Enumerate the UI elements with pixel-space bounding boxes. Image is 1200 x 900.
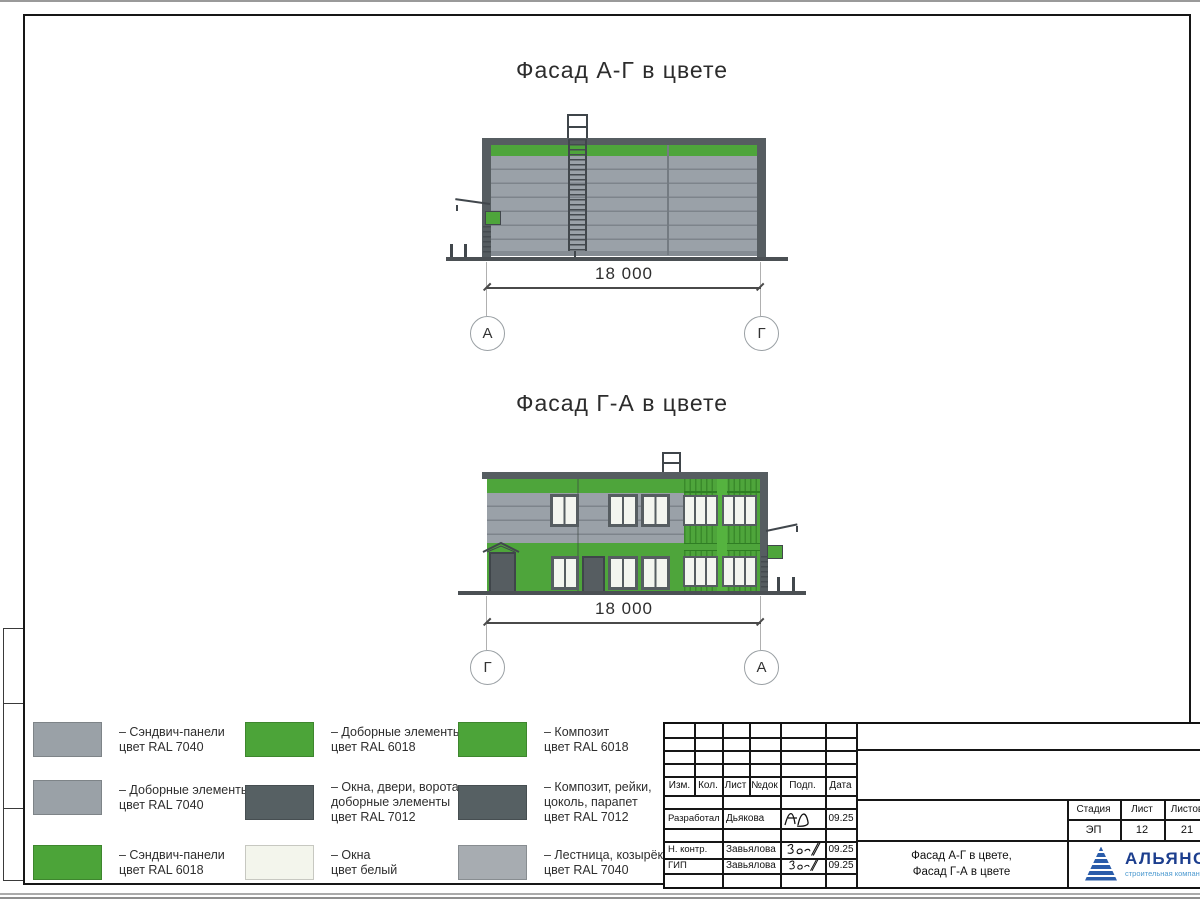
signature-icon <box>781 841 824 858</box>
rev-col-header: №док <box>749 776 780 795</box>
page-top-edge <box>0 0 1200 2</box>
bollard <box>450 244 453 258</box>
legend-item: – Композит, рейки,цоколь, парапетцвет RA… <box>458 780 652 825</box>
bollard <box>792 577 795 591</box>
sheet-name-line: Фасад А-Г в цвете, <box>911 848 1012 864</box>
frame-left <box>23 14 25 885</box>
axis-marker: Г <box>470 650 505 685</box>
parapet <box>482 138 766 145</box>
door <box>582 556 605 595</box>
legend-item: – Доборные элементыцвет RAL 7040 <box>33 780 250 815</box>
window <box>641 494 670 527</box>
page-bottom-edge <box>0 893 1200 895</box>
wall-ladder <box>568 139 587 251</box>
signature-name: Завьялова <box>723 858 782 873</box>
legend-item: – Лестница, козырёкцвет RAL 7040 <box>458 845 663 880</box>
legend-label: – Окнацвет белый <box>331 848 397 878</box>
signature-date: 09.25 <box>826 858 856 873</box>
color-swatch <box>33 845 102 880</box>
dimension-line <box>487 287 761 289</box>
rev-col-header: Кол. <box>694 776 722 795</box>
window-triple <box>722 495 757 526</box>
rev-col-header: Дата <box>825 776 856 795</box>
color-swatch <box>458 722 527 757</box>
window-triple <box>683 556 718 587</box>
sheet-header: Лист <box>1120 799 1164 819</box>
green-box <box>767 545 783 559</box>
window <box>550 494 579 527</box>
stage-header: Стадия <box>1067 799 1120 819</box>
frame-left-column-divider <box>3 703 23 704</box>
logo-name: АЛЬЯНС <box>1125 849 1200 869</box>
legend-item: – Сэндвич-панелицвет RAL 7040 <box>33 722 225 757</box>
window <box>608 494 638 527</box>
stage-value: ЭП <box>1067 819 1120 840</box>
color-swatch <box>458 845 527 880</box>
sheet-value: 12 <box>1120 819 1164 840</box>
drawing-sheet: { "drawings": { "facade_ag": { "title": … <box>0 0 1200 900</box>
signature-icon <box>781 858 824 873</box>
rev-col-header: Изм. <box>665 776 694 795</box>
title-block: Изм. Кол. Лист №док Подп. Дата Разработа… <box>663 722 1200 889</box>
company-logo: АЛЬЯНС строительная компания <box>1067 840 1200 887</box>
dimension-value: 18 000 <box>487 264 761 284</box>
axis-marker: А <box>470 316 505 351</box>
rev-col-header: Подп. <box>780 776 825 795</box>
legend-label: – Лестница, козырёкцвет RAL 7040 <box>544 848 663 878</box>
legend-item: – Окна, двери, ворота,доборные элементыц… <box>245 780 462 825</box>
logo-subtitle: строительная компания <box>1125 869 1200 878</box>
window <box>551 556 579 590</box>
door <box>489 552 516 595</box>
sandwich-panels <box>487 156 761 255</box>
legend-label: – Окна, двери, ворота,доборные элементыц… <box>331 780 462 825</box>
sheets-total-header: Листов <box>1164 799 1200 819</box>
column-rungs <box>761 556 768 589</box>
legend-item: – Сэндвич-панелицвет RAL 6018 <box>33 845 225 880</box>
green-box <box>485 211 501 225</box>
bollard <box>464 244 467 258</box>
dimension-value: 18 000 <box>487 599 761 619</box>
page-bottom-shadow <box>0 897 1200 899</box>
signature-role: Разработал <box>665 808 725 828</box>
signature-name: Завьялова <box>723 841 782 858</box>
signature-name: Дьякова <box>723 808 782 828</box>
corner-column-right <box>757 138 766 259</box>
green-band <box>487 145 761 156</box>
color-swatch <box>458 785 527 820</box>
sheets-total-value: 21 <box>1164 819 1200 840</box>
canopy <box>766 523 798 532</box>
canopy-support <box>456 205 458 211</box>
frame-left-column <box>3 628 4 880</box>
legend-item: – Окнацвет белый <box>245 845 397 880</box>
color-swatch <box>245 722 314 757</box>
axis-marker: А <box>744 650 779 685</box>
ground-line <box>446 257 788 261</box>
color-swatch <box>245 785 314 820</box>
legend-label: – Сэндвич-панелицвет RAL 7040 <box>119 725 225 755</box>
legend-label: – Доборные элементыцвет RAL 6018 <box>331 725 462 755</box>
legend-label: – Композит, рейки,цоколь, парапетцвет RA… <box>544 780 652 825</box>
pyramid-logo-icon <box>1085 847 1117 881</box>
dimension-line <box>487 622 761 624</box>
canopy-support <box>796 526 798 532</box>
frame-left-column-divider <box>3 628 23 629</box>
axis-marker: Г <box>744 316 779 351</box>
parapet <box>482 472 768 479</box>
legend-item: – Доборные элементыцвет RAL 6018 <box>245 722 462 757</box>
plinth <box>491 251 757 256</box>
rev-col-header: Лист <box>722 776 749 795</box>
legend-label: – Доборные элементыцвет RAL 7040 <box>119 783 250 813</box>
signature-date: 09.25 <box>826 808 856 828</box>
frame-left-column-divider <box>3 808 23 809</box>
window <box>608 556 638 590</box>
color-swatch <box>33 722 102 757</box>
frame-left-column-divider <box>3 880 23 881</box>
color-swatch <box>33 780 102 815</box>
signature-role: Н. контр. <box>665 841 725 858</box>
panel-joint <box>667 145 669 255</box>
column-rungs <box>483 226 491 256</box>
legend-label: – Композитцвет RAL 6018 <box>544 725 629 755</box>
legend-item: – Композитцвет RAL 6018 <box>458 722 629 757</box>
sheet-name: Фасад А-Г в цвете, Фасад Г-А в цвете <box>856 840 1067 887</box>
bollard <box>777 577 780 591</box>
logo-text: АЛЬЯНС строительная компания <box>1125 849 1200 878</box>
window-triple <box>683 495 718 526</box>
facade-ga-title: Фасад Г-А в цвете <box>437 390 807 417</box>
window <box>641 556 670 590</box>
facade-ag-title: Фасад А-Г в цвете <box>437 57 807 84</box>
signature-icon <box>781 808 824 828</box>
ground-line <box>458 591 806 595</box>
window-triple <box>722 556 757 587</box>
signature-date: 09.25 <box>826 841 856 858</box>
sheet-name-line: Фасад Г-А в цвете <box>911 864 1012 880</box>
frame-top <box>23 14 1191 16</box>
color-swatch <box>245 845 314 880</box>
legend-label: – Сэндвич-панелицвет RAL 6018 <box>119 848 225 878</box>
signature-role: ГИП <box>665 858 725 873</box>
